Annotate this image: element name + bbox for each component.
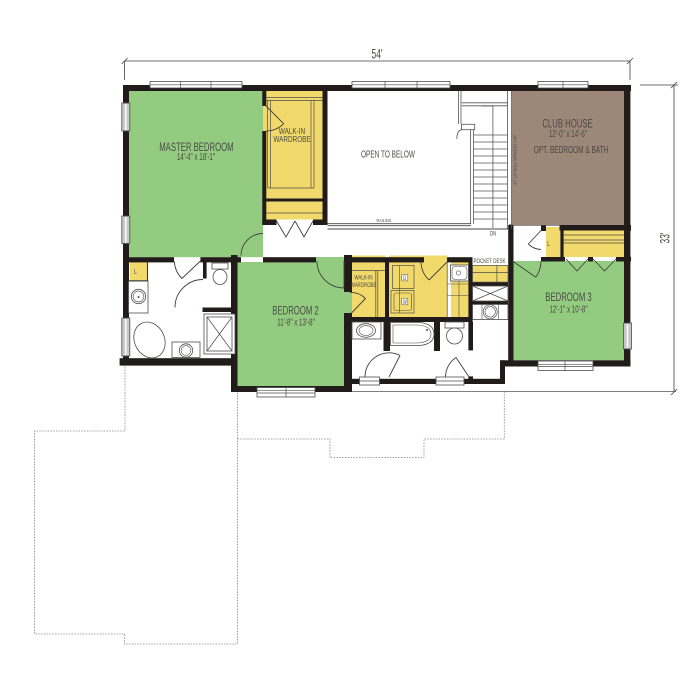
svg-text:DN: DN [490, 231, 496, 238]
svg-text:OPT. BEDROOM & BATH: OPT. BEDROOM & BATH [534, 143, 609, 155]
svg-text:42" 1/2 WALL W/WOOD CAP: 42" 1/2 WALL W/WOOD CAP [512, 135, 517, 185]
svg-text:L: L [134, 268, 137, 276]
svg-text:54': 54' [372, 48, 383, 62]
svg-text:W: W [403, 299, 407, 306]
svg-text:WARDROBE: WARDROBE [351, 282, 377, 289]
svg-text:RAILING: RAILING [377, 217, 392, 223]
svg-text:14'-4" x 18'-1": 14'-4" x 18'-1" [177, 151, 215, 163]
svg-text:OPEN TO BELOW: OPEN TO BELOW [361, 148, 415, 160]
svg-text:33': 33' [659, 233, 673, 244]
svg-text:D: D [403, 275, 406, 282]
svg-text:12'-0" x 14'-6": 12'-0" x 14'-6" [549, 127, 587, 139]
svg-text:12'-1" x 10'-8": 12'-1" x 10'-8" [549, 303, 587, 315]
svg-text:11'-8" x 13'-8": 11'-8" x 13'-8" [277, 316, 315, 328]
svg-text:POCKET DESK: POCKET DESK [474, 258, 506, 265]
svg-text:WALK-IN: WALK-IN [354, 275, 372, 282]
svg-text:WARDROBE: WARDROBE [273, 134, 310, 144]
